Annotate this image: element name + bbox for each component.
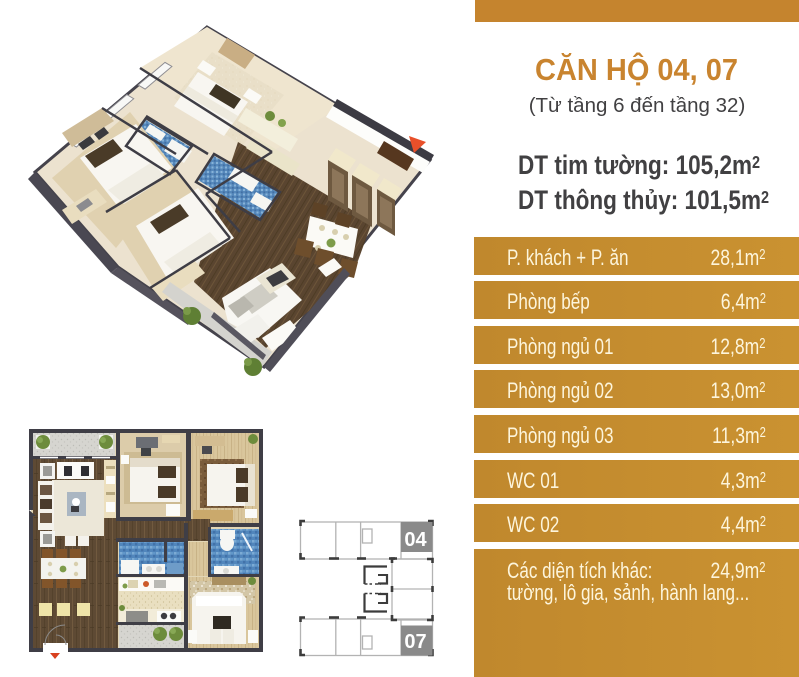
svg-text:07: 07 xyxy=(404,631,426,653)
svg-text:04: 04 xyxy=(404,529,427,551)
